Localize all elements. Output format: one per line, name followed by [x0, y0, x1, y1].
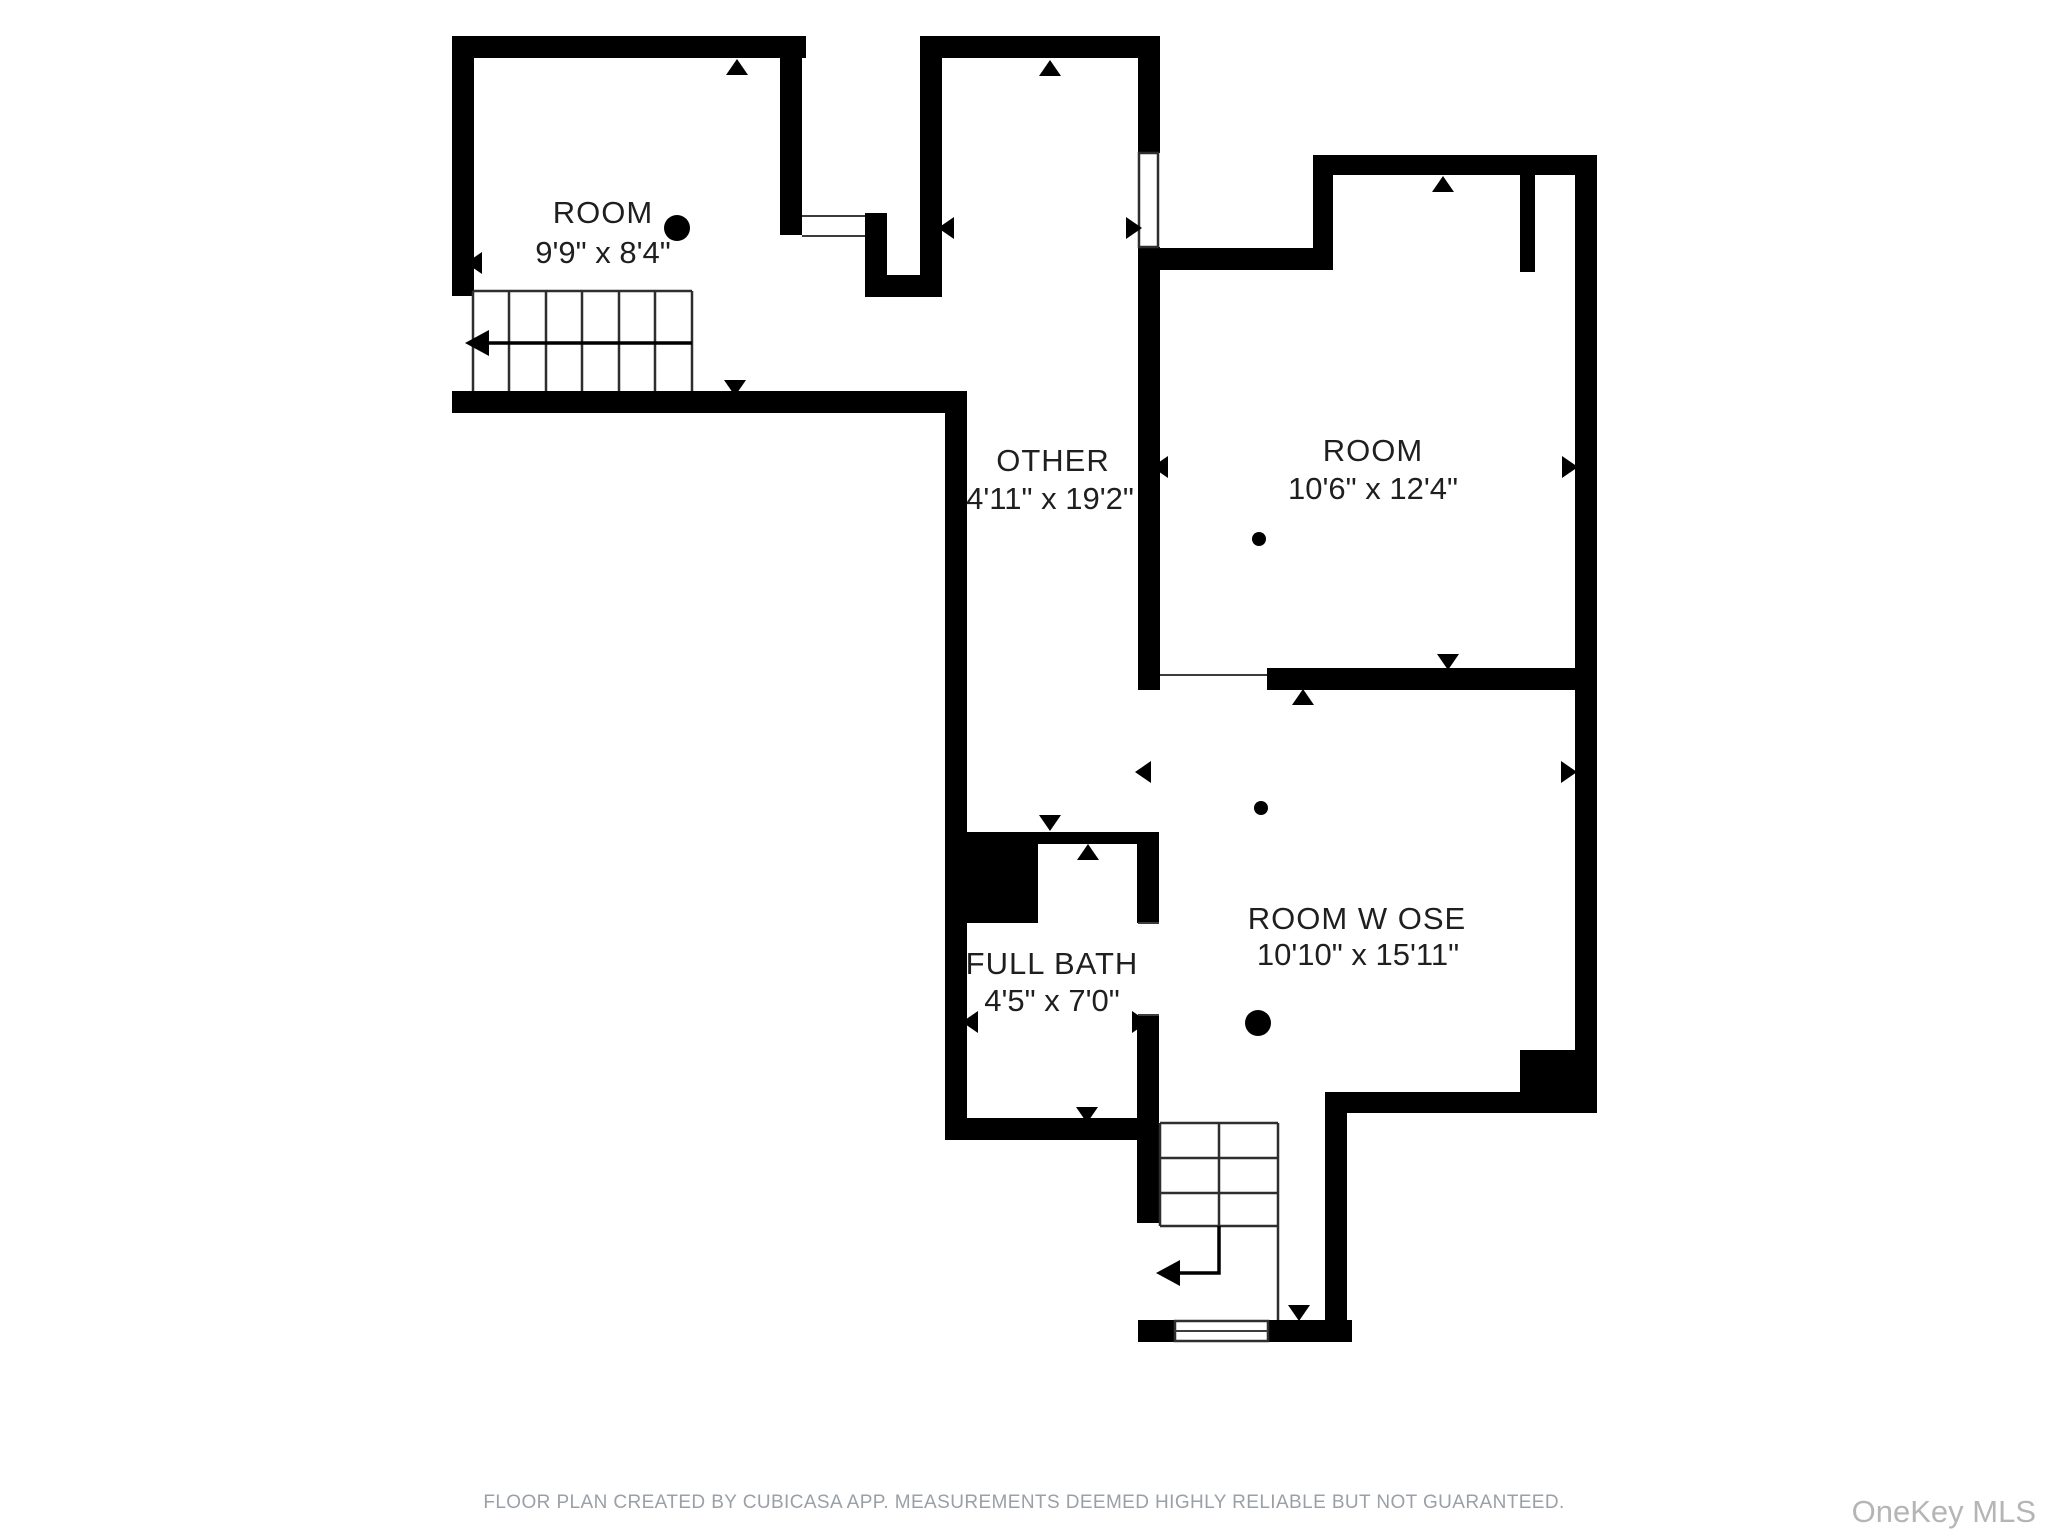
door-marker-icon: [1039, 60, 1061, 76]
room-label-name: ROOM: [553, 195, 653, 230]
floor-plan-page: ROOM 9'9" x 8'4" OTHER 4'11" x 19'2" ROO…: [0, 0, 2048, 1536]
wall-segment: [1138, 58, 1160, 153]
stair-arrowhead-icon: [465, 330, 489, 356]
door-marker-icon: [1432, 176, 1454, 192]
door-marker-icon: [1292, 689, 1314, 705]
wall-segment: [1520, 175, 1535, 272]
door-marker-icon: [1039, 815, 1061, 831]
wall-segment: [1325, 1092, 1347, 1342]
stair-direction-arrow: [1180, 1226, 1219, 1273]
wall-segment: [1267, 668, 1597, 690]
wall-segment: [920, 36, 1160, 58]
wall-segment: [960, 843, 1038, 923]
wall-segment: [452, 36, 474, 296]
fixture-dot: [1252, 532, 1266, 546]
staircase-upper: [465, 291, 692, 391]
room-label-dims: 10'6" x 12'4": [1288, 471, 1458, 506]
wall-segment: [945, 1118, 1159, 1140]
walls: [452, 36, 1597, 1342]
wall-segment: [865, 213, 887, 277]
door-marker-icon: [726, 59, 748, 75]
room-label-dims: 4'11" x 19'2": [966, 481, 1134, 516]
room-label-dims: 10'10" x 15'11": [1257, 937, 1459, 972]
wall-segment: [1137, 832, 1159, 923]
wall-segment: [1140, 248, 1333, 270]
wall-segment: [780, 58, 802, 235]
mls-watermark: OneKey MLS: [1852, 1494, 2036, 1530]
wall-segment: [452, 391, 967, 413]
door-marker-icon: [1561, 761, 1577, 783]
room-label-name: ROOM W OSE: [1248, 901, 1466, 936]
wall-segment: [947, 832, 1158, 844]
room-label-name: FULL BATH: [966, 946, 1139, 981]
staircase-lower: [1156, 1123, 1278, 1320]
wall-segment: [920, 36, 942, 297]
door-marker-icon: [1135, 761, 1151, 783]
floor-plan-canvas: ROOM 9'9" x 8'4" OTHER 4'11" x 19'2" ROO…: [0, 0, 2048, 1536]
wall-segment: [1575, 155, 1597, 1113]
disclaimer-text: FLOOR PLAN CREATED BY CUBICASA APP. MEAS…: [0, 1492, 2048, 1514]
stair-arrowhead-icon: [1156, 1260, 1180, 1286]
door-marker-icon: [1288, 1305, 1310, 1321]
window-symbol: [1139, 153, 1158, 247]
wall-segment: [1313, 155, 1597, 175]
openings: [802, 153, 1268, 1341]
wall-segment: [452, 36, 806, 58]
room-label-dims: 9'9" x 8'4": [535, 235, 671, 270]
fixture-dot: [1245, 1010, 1271, 1036]
fixture-dot: [1254, 801, 1268, 815]
door-marker-icon: [1077, 844, 1099, 860]
door-marker-icon: [1437, 654, 1459, 670]
room-label-name: OTHER: [996, 443, 1110, 478]
wall-segment: [1520, 1050, 1575, 1113]
room-label-dims: 4'5" x 7'0": [984, 983, 1120, 1018]
room-label-name: ROOM: [1323, 433, 1423, 468]
wall-segment: [945, 391, 967, 1140]
